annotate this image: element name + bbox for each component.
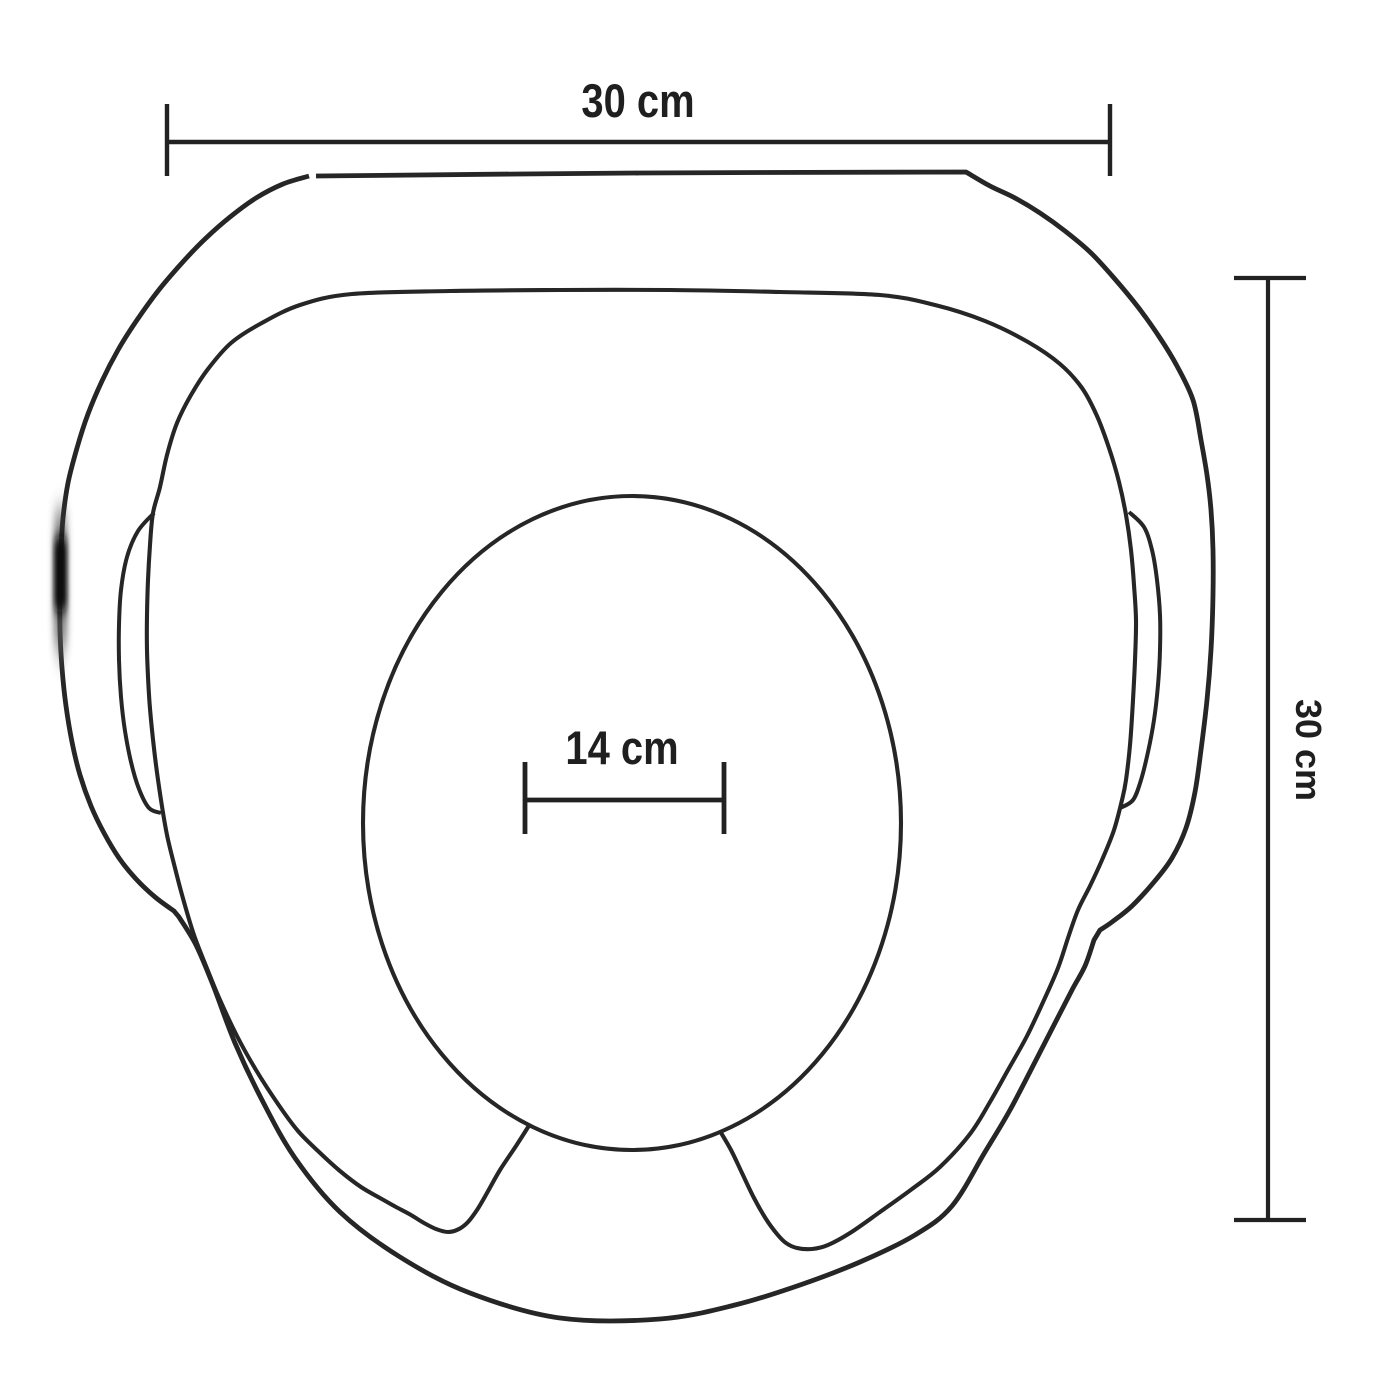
svg-text:30 cm: 30 cm	[1288, 699, 1329, 801]
svg-text:30 cm: 30 cm	[581, 76, 694, 128]
svg-text:14 cm: 14 cm	[565, 723, 678, 775]
